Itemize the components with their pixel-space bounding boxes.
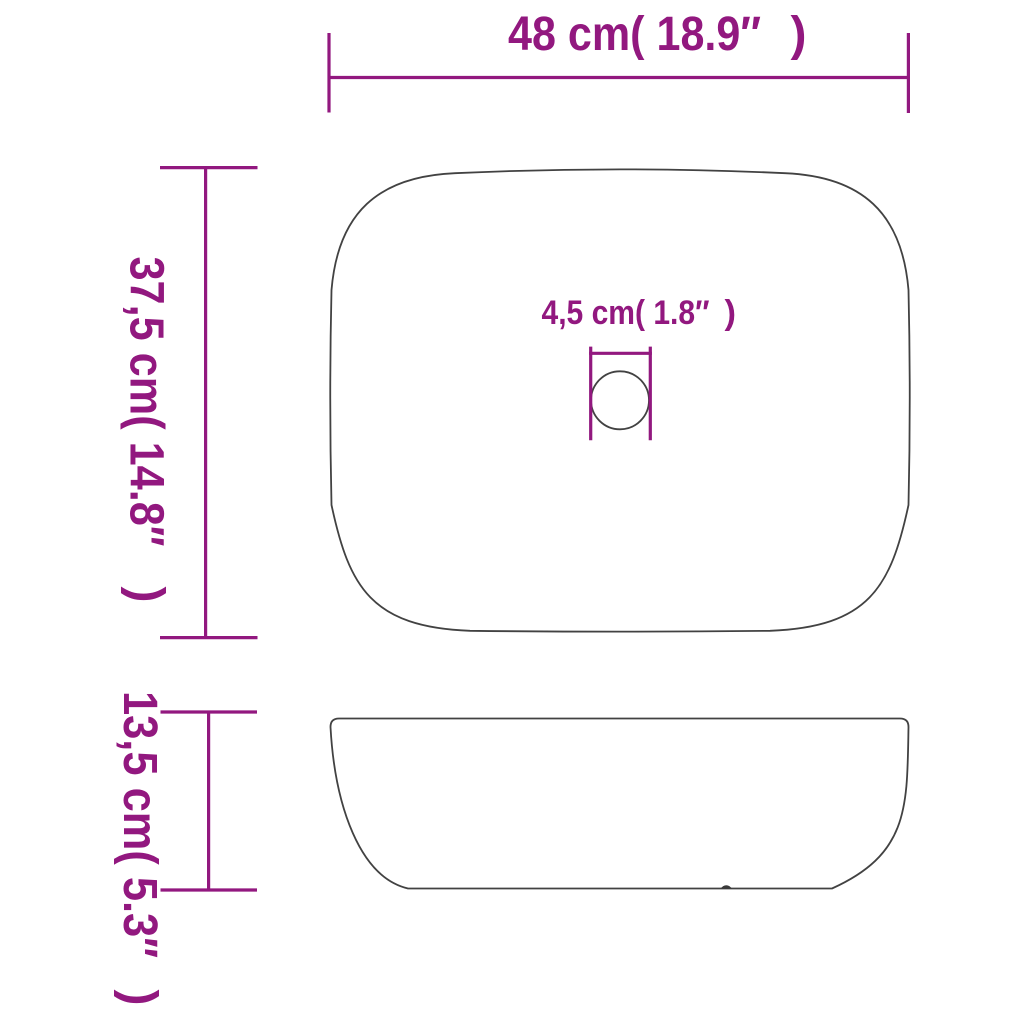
svg-text:): ): [791, 8, 807, 61]
svg-text:37,5 cm( 14.8″: 37,5 cm( 14.8″: [120, 257, 173, 547]
svg-text:): ): [113, 990, 166, 1006]
svg-text:): ): [120, 587, 173, 603]
svg-text:): ): [725, 294, 737, 332]
svg-text:48 cm( 18.9″: 48 cm( 18.9″: [508, 8, 761, 61]
svg-text:13,5 cm( 5.3″: 13,5 cm( 5.3″: [113, 691, 166, 958]
svg-text:4,5 cm( 1.8″: 4,5 cm( 1.8″: [542, 294, 710, 332]
